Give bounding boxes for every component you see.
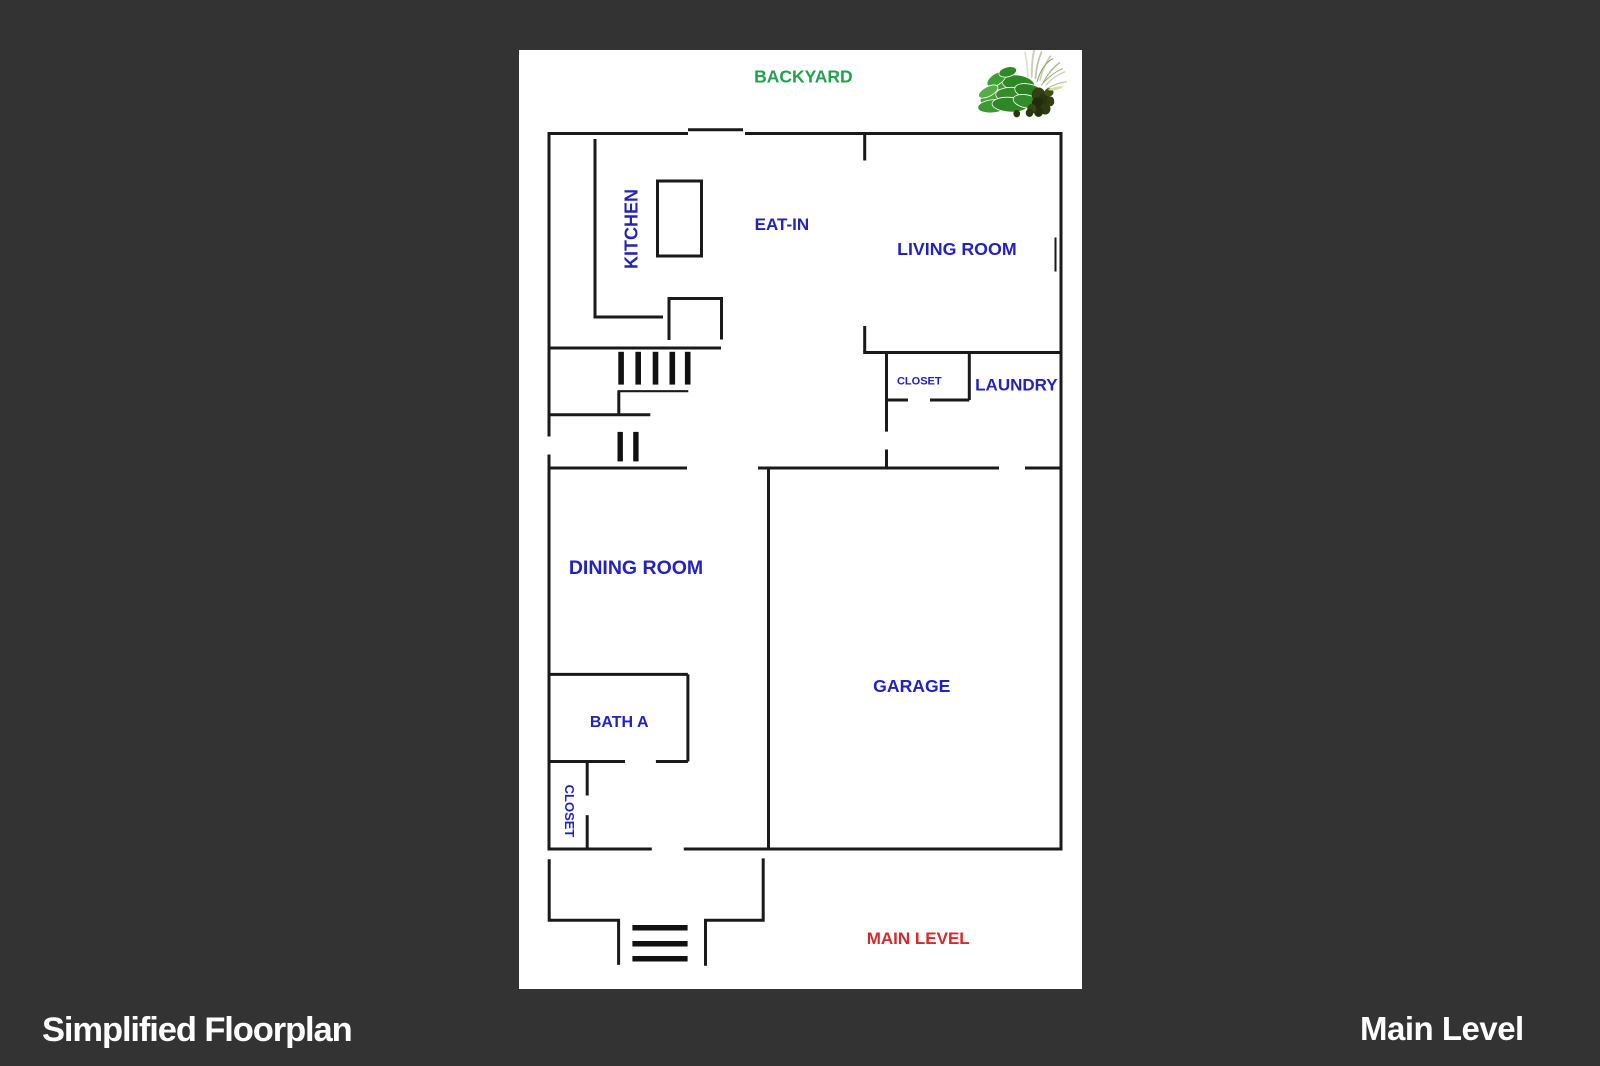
svg-text:CLOSET: CLOSET bbox=[562, 785, 577, 838]
svg-text:CLOSET: CLOSET bbox=[897, 376, 942, 388]
svg-text:MAIN LEVEL: MAIN LEVEL bbox=[867, 929, 970, 948]
svg-text:LIVING ROOM: LIVING ROOM bbox=[897, 239, 1017, 259]
svg-text:BATH A: BATH A bbox=[590, 714, 649, 731]
svg-text:KITCHEN: KITCHEN bbox=[621, 189, 641, 269]
svg-text:LAUNDRY: LAUNDRY bbox=[975, 376, 1058, 395]
svg-text:EAT-IN: EAT-IN bbox=[755, 215, 809, 234]
svg-text:GARAGE: GARAGE bbox=[873, 676, 950, 696]
svg-text:DINING ROOM: DINING ROOM bbox=[569, 557, 703, 579]
svg-text:BACKYARD: BACKYARD bbox=[754, 66, 853, 86]
